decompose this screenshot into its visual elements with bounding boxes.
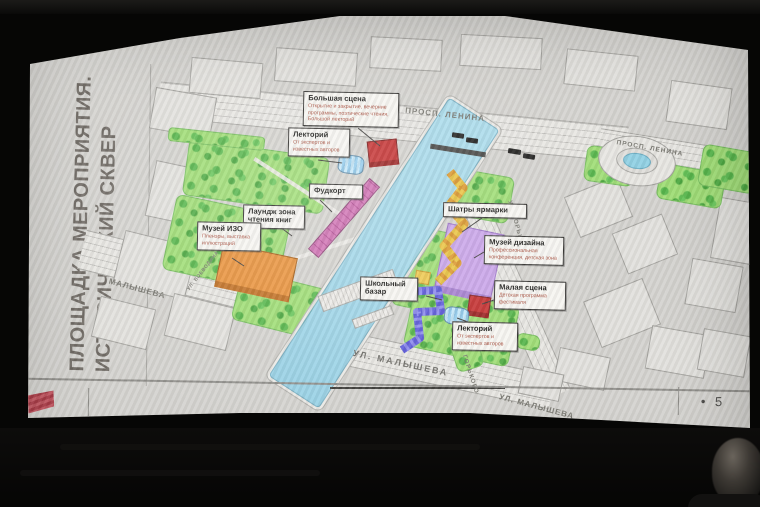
callout-lectory-left: Лекторий От экспертов и известных авторо… — [288, 127, 351, 157]
city-block — [684, 258, 743, 313]
callout-title: Лекторий — [293, 130, 345, 139]
callout-subtitle: От экспертов и известных авторов — [457, 334, 513, 348]
footer-divider-right — [678, 387, 679, 415]
city-block — [274, 47, 358, 87]
callout-title: Школьный базар — [365, 279, 413, 297]
city-block — [459, 34, 543, 70]
city-block — [697, 328, 752, 378]
city-block — [612, 213, 679, 274]
callout-title: Музей ИЗО — [202, 224, 256, 233]
city-block — [665, 80, 732, 130]
callout-title: Малая сцена — [499, 283, 561, 293]
auditorium-photo: ПЛОЩАДКА МЕРОПРИЯТИЯ. ИСТОРИЧЕСКИЙ СКВЕР — [0, 0, 760, 507]
audience-silhouette-shoulder — [688, 494, 760, 507]
dark-floor — [0, 428, 760, 507]
city-block — [189, 57, 264, 99]
callout-subtitle: Открытие и закрытие, вечерние программы,… — [308, 103, 394, 124]
ceiling-shadow — [0, 0, 760, 14]
callout-title: Музей дизайна — [489, 238, 559, 248]
callout-school-bazaar: Школьный базар — [360, 276, 418, 301]
callout-museum-design: Музей дизайна Профессиональная конференц… — [484, 235, 565, 266]
callout-foodcourt: Фудкорт — [309, 183, 363, 199]
car — [523, 153, 536, 160]
footer-rule — [28, 378, 750, 392]
callout-fair-tents: Шатры ярмарки — [443, 202, 527, 219]
callout-title: Лекторий — [457, 324, 513, 333]
callout-subtitle: Профессиональная конференция, детская зо… — [489, 248, 559, 262]
callout-title: Фудкорт — [314, 187, 358, 196]
callout-title: Шатры ярмарки — [448, 205, 522, 215]
seat-row-shadow — [20, 470, 320, 476]
road-edge-line — [330, 387, 505, 389]
callout-lectory-bottom: Лекторий От экспертов и известных авторо… — [452, 321, 519, 351]
callout-subtitle: Детская программа фестиваля — [499, 293, 561, 307]
callout-museum-izo: Музей ИЗО Пленэры, выставка иллюстраций — [197, 221, 262, 251]
city-block — [369, 36, 443, 72]
callout-small-stage: Малая сцена Детская программа фестиваля — [494, 280, 567, 310]
callout-subtitle: Пленэры, выставка иллюстраций — [202, 234, 256, 248]
big-stage-marker — [367, 139, 400, 168]
festival-logo — [28, 391, 55, 414]
small-stage-marker — [467, 295, 492, 319]
callout-big-stage: Большая сцена Открытие и закрытие, вечер… — [303, 91, 400, 128]
footer-divider-left — [88, 388, 89, 416]
seat-row-shadow — [60, 444, 480, 450]
city-block — [563, 48, 638, 91]
car — [508, 148, 522, 155]
page-number: • 5 — [682, 387, 745, 414]
callout-subtitle: От экспертов и известных авторов — [293, 140, 345, 154]
